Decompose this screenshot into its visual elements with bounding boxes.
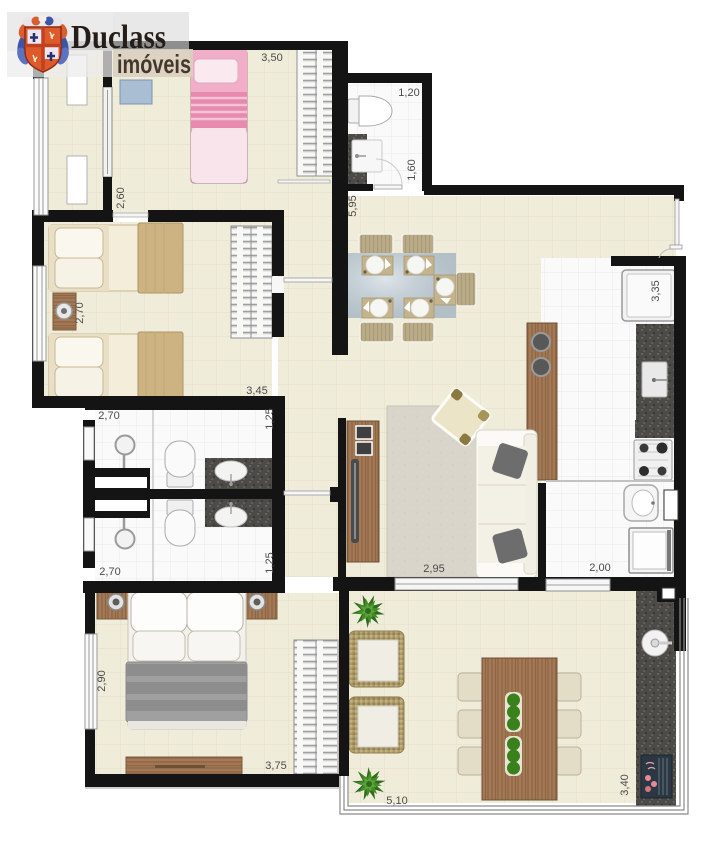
svg-text:1,25: 1,25 (264, 552, 276, 573)
svg-text:3,35: 3,35 (650, 280, 662, 301)
svg-text:2,70: 2,70 (99, 566, 120, 578)
svg-text:2,70: 2,70 (98, 410, 119, 422)
svg-text:1,20: 1,20 (398, 87, 419, 99)
svg-text:1,25: 1,25 (264, 408, 276, 429)
svg-text:2,70: 2,70 (74, 302, 86, 323)
svg-text:3,40: 3,40 (619, 774, 631, 795)
svg-text:3,45: 3,45 (246, 385, 267, 397)
svg-text:imóveis: imóveis (117, 49, 191, 79)
svg-text:2,95: 2,95 (423, 563, 444, 575)
svg-text:3,50: 3,50 (261, 52, 282, 64)
svg-text:5,95: 5,95 (347, 195, 359, 216)
svg-text:2,90: 2,90 (96, 670, 108, 691)
svg-text:3,75: 3,75 (265, 760, 286, 772)
svg-text:2,60: 2,60 (115, 187, 127, 208)
svg-text:1,60: 1,60 (406, 159, 418, 180)
svg-text:2,00: 2,00 (589, 562, 610, 574)
svg-text:5,10: 5,10 (386, 795, 407, 807)
